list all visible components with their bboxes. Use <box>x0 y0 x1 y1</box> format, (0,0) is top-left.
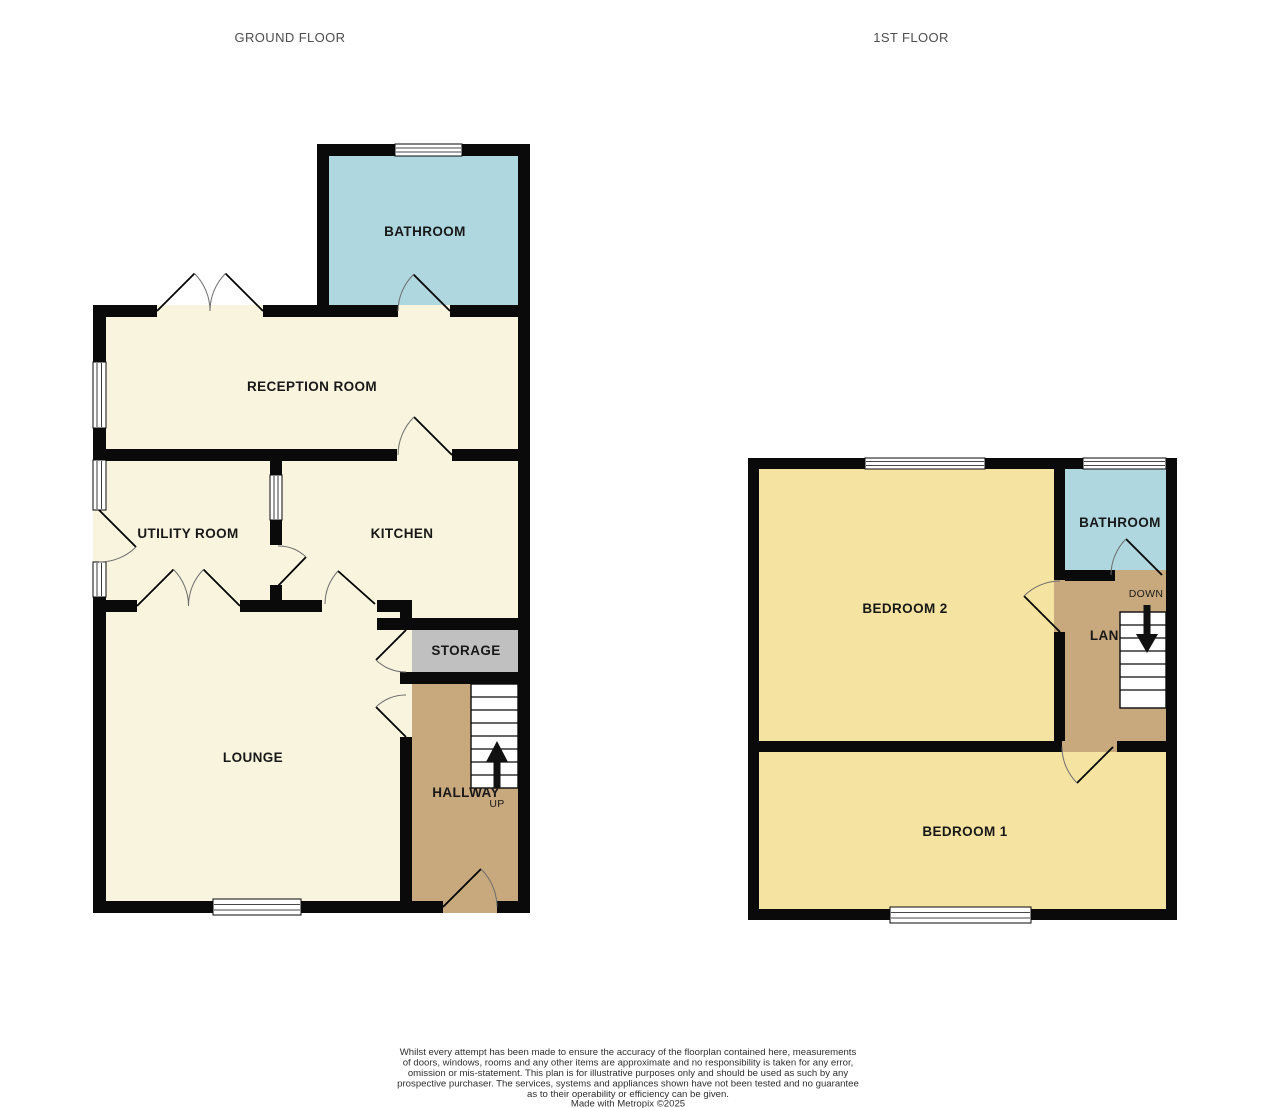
wall <box>377 618 518 630</box>
room-label-bedroom-1: BEDROOM 1 <box>922 824 1007 839</box>
room-label-storage: STORAGE <box>431 643 500 658</box>
disclaimer-line: of doors, windows, rooms and any other i… <box>403 1058 854 1069</box>
window <box>395 144 462 156</box>
ground-floor-title: GROUND FLOOR <box>235 30 346 45</box>
first-floor-title: 1ST FLOOR <box>873 30 949 45</box>
window <box>93 362 106 428</box>
wall <box>317 144 329 316</box>
floorplan-canvas: GROUND FLOOR 1ST FLOOR <box>0 0 1280 1108</box>
room-label-lounge: LOUNGE <box>223 750 283 765</box>
door-opening <box>1054 580 1065 632</box>
door-opening <box>270 545 282 585</box>
door-opening <box>322 600 377 612</box>
door-opening <box>400 630 412 672</box>
room-label-bathroom-first: BATHROOM <box>1079 515 1161 530</box>
door-opening <box>93 510 106 562</box>
ground-floor-plan: BATHROOM RECEPTION ROOM UTILITY ROOM KIT… <box>93 144 530 915</box>
door-opening <box>398 305 450 317</box>
window <box>213 899 301 915</box>
door-opening <box>397 449 452 461</box>
room-label-bedroom-2: BEDROOM 2 <box>862 601 947 616</box>
wall <box>400 672 518 684</box>
window <box>890 907 1031 923</box>
internal-window <box>270 475 282 520</box>
stairs-up-label: UP <box>489 798 504 810</box>
wall <box>518 144 530 913</box>
floorplan-page: GROUND FLOOR 1ST FLOOR <box>0 0 1280 1108</box>
door-opening <box>400 684 412 737</box>
room-label-bathroom-ground: BATHROOM <box>384 224 466 239</box>
window <box>1083 458 1166 469</box>
window <box>93 460 106 510</box>
stairs-down-label: DOWN <box>1129 588 1163 600</box>
disclaimer-line: Whilst every attempt has been made to en… <box>400 1047 857 1058</box>
wall <box>1166 458 1177 920</box>
disclaimer-line: omission or mis-statement. This plan is … <box>408 1068 848 1079</box>
stairs-first <box>1120 612 1166 708</box>
window <box>93 562 106 597</box>
wall <box>93 449 518 461</box>
disclaimer-line: prospective purchaser. The services, sys… <box>397 1079 859 1090</box>
front-door-opening <box>443 901 497 913</box>
room-label-utility: UTILITY ROOM <box>137 526 238 541</box>
disclaimer: Whilst every attempt has been made to en… <box>397 1047 859 1108</box>
disclaimer-line: Made with Metropix ©2025 <box>571 1099 685 1108</box>
room-label-kitchen: KITCHEN <box>371 526 434 541</box>
room-label-reception: RECEPTION ROOM <box>247 379 377 394</box>
window <box>865 458 985 469</box>
wall <box>93 305 518 317</box>
first-floor-plan: LANDING BEDROOM 2 BATHROOM DOWN BEDROOM … <box>748 458 1177 923</box>
wall <box>748 458 759 920</box>
